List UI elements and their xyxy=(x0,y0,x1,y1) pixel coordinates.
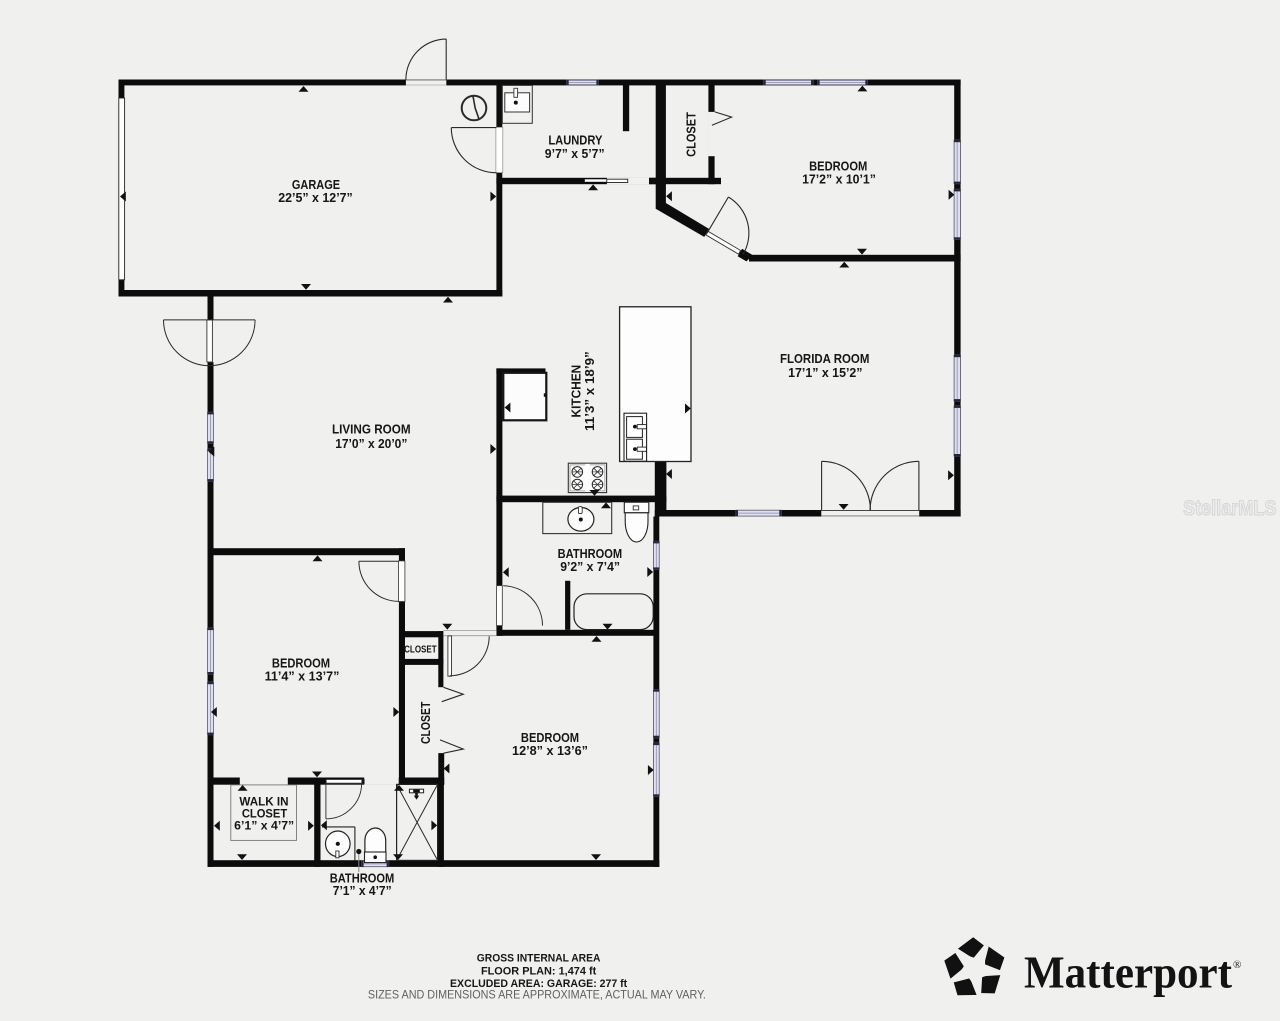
svg-text:22’5” x 12’7”: 22’5” x 12’7” xyxy=(278,190,353,205)
svg-text:9’7” x 5’7”: 9’7” x 5’7” xyxy=(545,146,605,161)
svg-text:EXCLUDED AREA: GARAGE: 277 ft: EXCLUDED AREA: GARAGE: 277 ft xyxy=(450,978,628,990)
svg-text:12’8” x 13’6”: 12’8” x 13’6” xyxy=(512,743,588,758)
svg-text:FLORIDA ROOM: FLORIDA ROOM xyxy=(780,351,869,366)
svg-text:17’0” x 20’0”: 17’0” x 20’0” xyxy=(335,436,407,451)
svg-text:LIVING ROOM: LIVING ROOM xyxy=(332,422,411,437)
svg-text:StellarMLS: StellarMLS xyxy=(1183,497,1277,520)
svg-text:11’3” x 18’9”: 11’3” x 18’9” xyxy=(582,351,597,431)
svg-text:17’2” x 10’1”: 17’2” x 10’1” xyxy=(802,172,876,187)
svg-text:CLOSET: CLOSET xyxy=(418,701,433,744)
svg-text:9’2” x 7’4”: 9’2” x 7’4” xyxy=(560,559,620,574)
svg-text:CLOSET: CLOSET xyxy=(404,645,437,656)
svg-text:CLOSET: CLOSET xyxy=(242,809,287,821)
svg-text:Matterport: Matterport xyxy=(1024,947,1233,998)
svg-text:6’1” x 4’7”: 6’1” x 4’7” xyxy=(234,820,294,832)
svg-text:11’4” x 13’7”: 11’4” x 13’7” xyxy=(265,668,340,683)
svg-text:7’1” x 4’7”: 7’1” x 4’7” xyxy=(333,883,392,898)
svg-text:SIZES AND DIMENSIONS ARE APPRO: SIZES AND DIMENSIONS ARE APPROXIMATE, AC… xyxy=(368,989,706,1001)
svg-text:17’1” x 15’2”: 17’1” x 15’2” xyxy=(788,365,862,380)
svg-text:WALK IN: WALK IN xyxy=(239,797,288,809)
svg-text:GROSS INTERNAL AREA: GROSS INTERNAL AREA xyxy=(477,953,601,965)
svg-text:CLOSET: CLOSET xyxy=(684,112,699,157)
svg-text:®: ® xyxy=(1233,959,1241,971)
svg-text:FLOOR PLAN: 1,474 ft: FLOOR PLAN: 1,474 ft xyxy=(481,965,597,977)
